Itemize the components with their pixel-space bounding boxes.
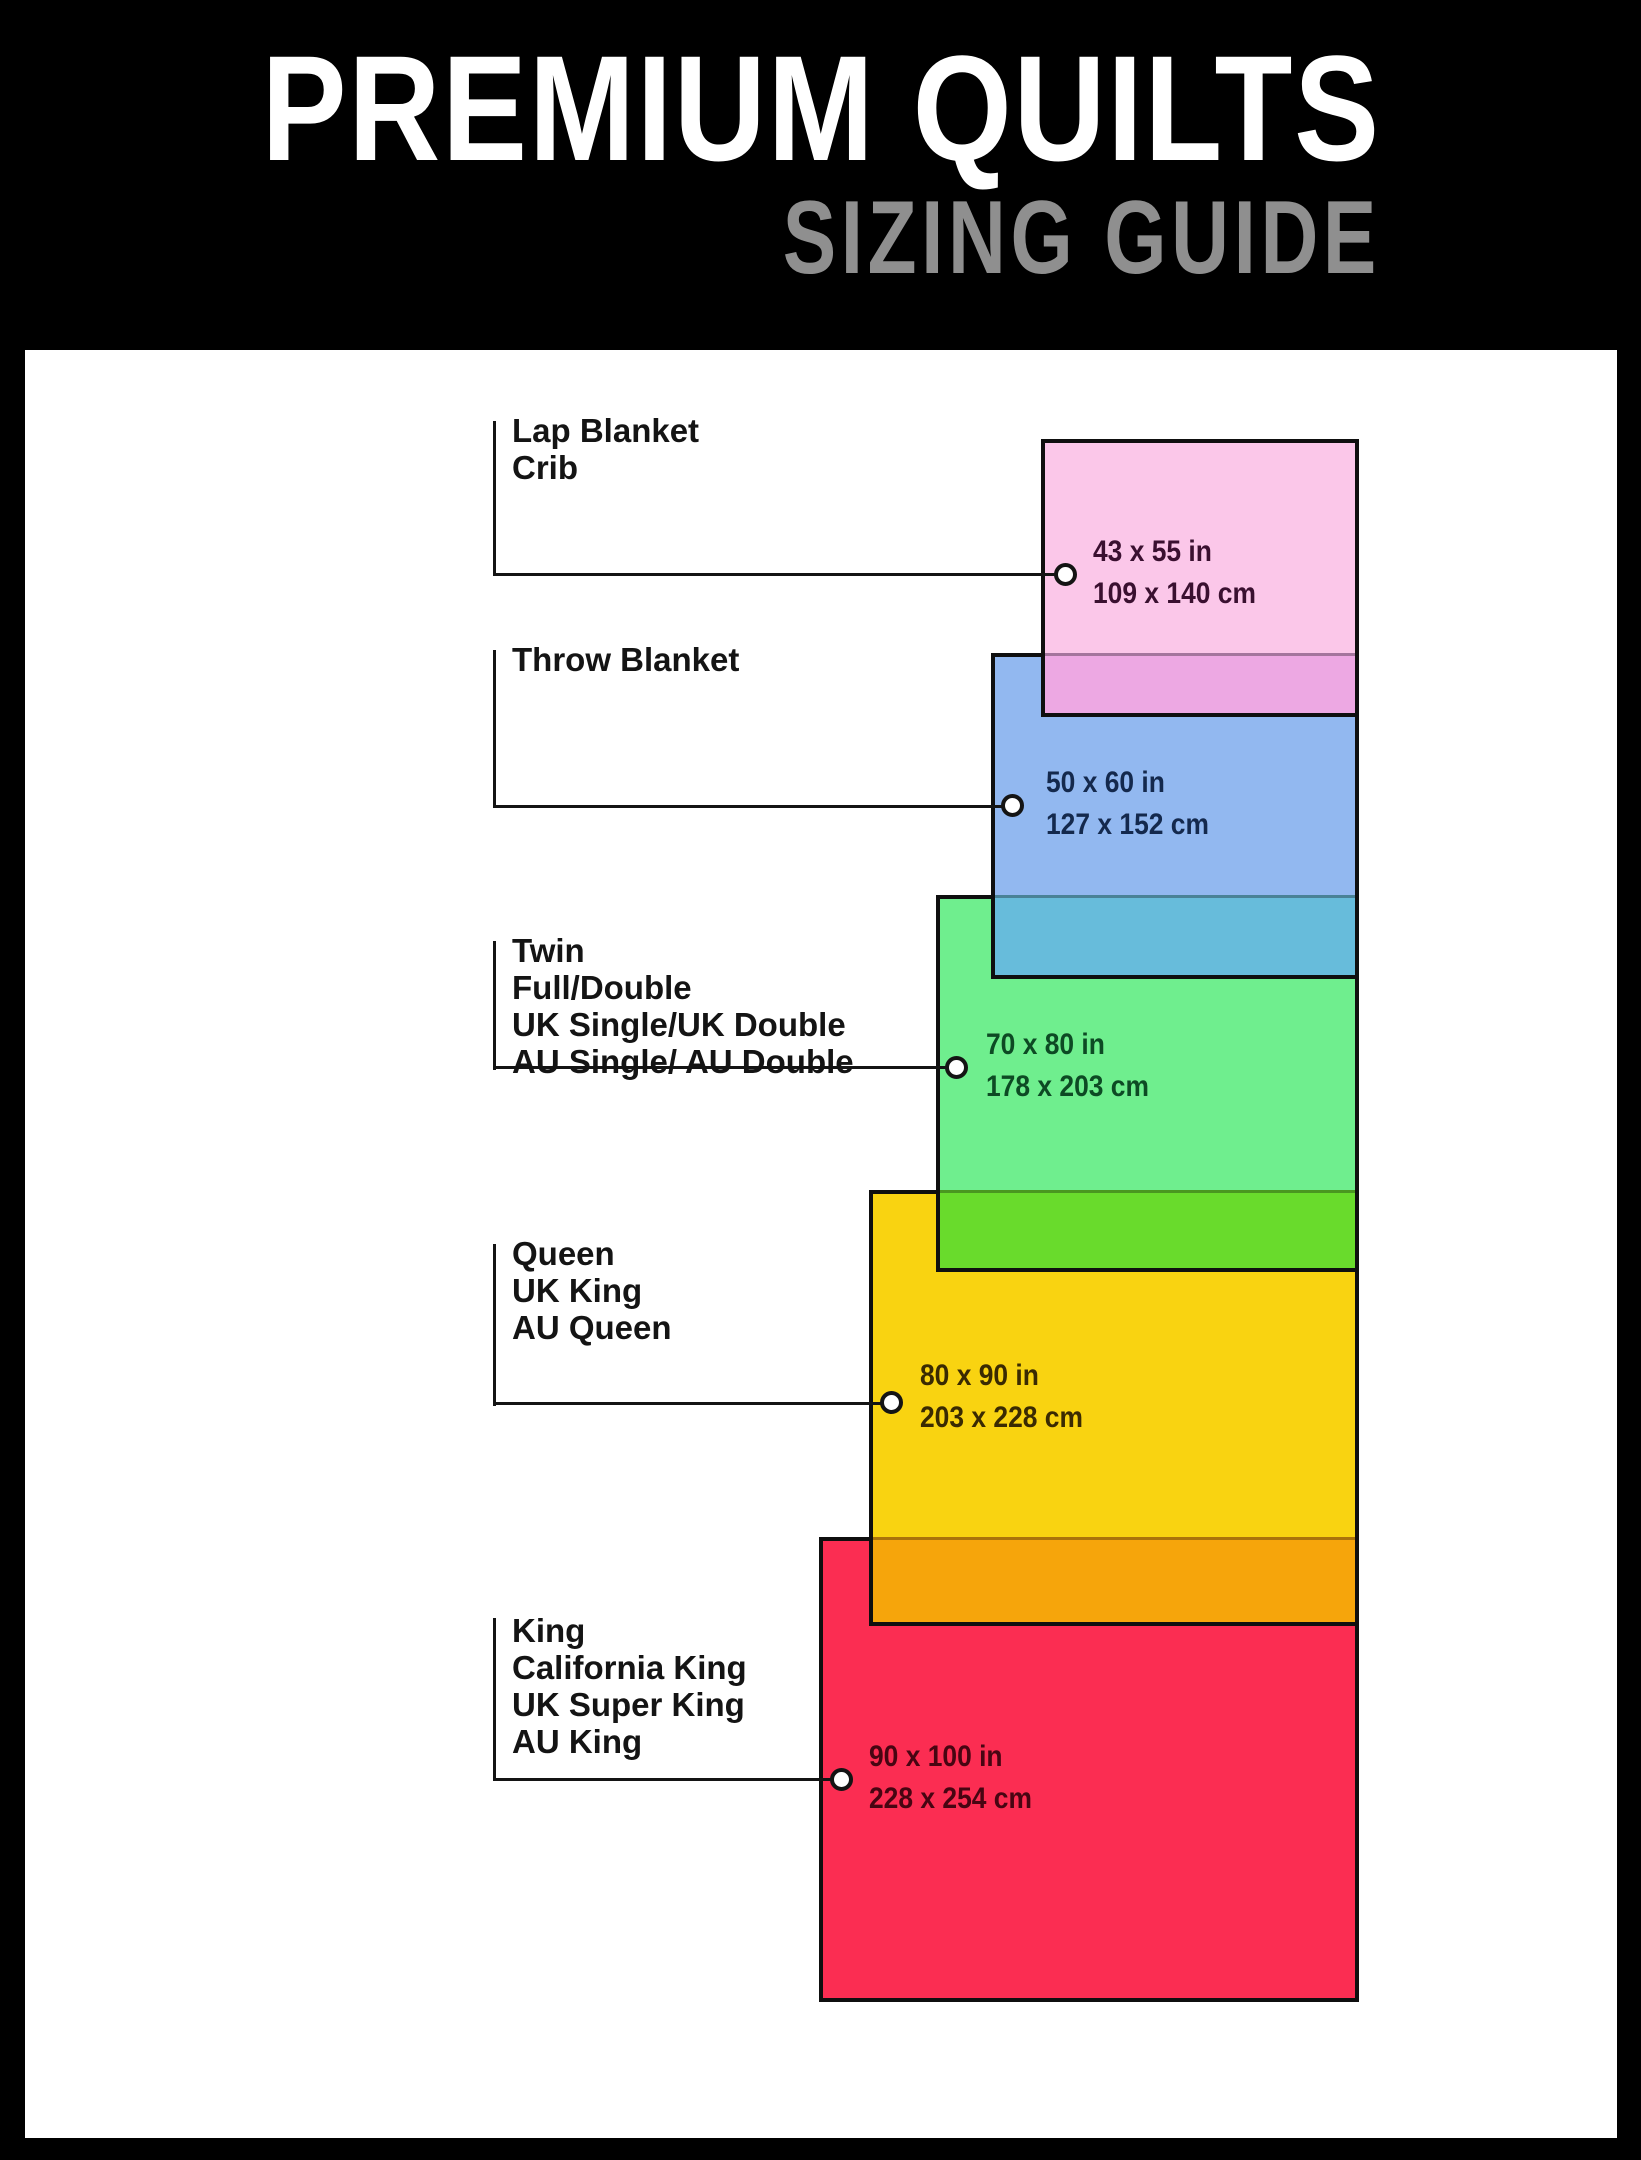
category-label: Lap Blanket Crib xyxy=(512,412,699,486)
dimension-label: 80 x 90 in 203 x 228 cm xyxy=(920,1355,1083,1439)
leader-marker xyxy=(945,1056,968,1079)
overlap-band xyxy=(995,895,1355,975)
category-label: Queen UK King AU Queen xyxy=(512,1235,672,1346)
sizing-guide-infographic: PREMIUM QUILTS SIZING GUIDE Lap Blanket … xyxy=(0,0,1641,2160)
dimension-cm: 178 x 203 cm xyxy=(986,1066,1149,1108)
leader-line xyxy=(493,1402,885,1405)
page-title: PREMIUM QUILTS xyxy=(262,33,1381,183)
leader-line xyxy=(493,573,1059,576)
dimension-cm: 127 x 152 cm xyxy=(1046,804,1209,846)
leader-marker xyxy=(880,1391,903,1414)
overlap-band xyxy=(1045,653,1355,713)
category-label-line: California King xyxy=(512,1649,747,1686)
category-label-line: AU Queen xyxy=(512,1309,672,1346)
category-label-line: Queen xyxy=(512,1235,672,1272)
leader-tick xyxy=(493,1618,496,1781)
dimension-inches: 43 x 55 in xyxy=(1093,531,1256,573)
dimension-cm: 203 x 228 cm xyxy=(920,1397,1083,1439)
category-label-line: Full/Double xyxy=(512,969,854,1006)
dimension-inches: 70 x 80 in xyxy=(986,1024,1149,1066)
category-label-line: UK King xyxy=(512,1272,672,1309)
dimension-cm: 109 x 140 cm xyxy=(1093,573,1256,615)
dimension-inches: 80 x 90 in xyxy=(920,1355,1083,1397)
dimension-label: 43 x 55 in 109 x 140 cm xyxy=(1093,531,1256,615)
leader-tick xyxy=(493,650,496,808)
category-label-line: UK Super King xyxy=(512,1686,747,1723)
page-subtitle: SIZING GUIDE xyxy=(783,186,1381,290)
leader-marker xyxy=(830,1768,853,1791)
dimension-cm: 228 x 254 cm xyxy=(869,1778,1032,1820)
category-label: Throw Blanket xyxy=(512,641,739,678)
category-label-line: King xyxy=(512,1612,747,1649)
leader-marker xyxy=(1054,563,1077,586)
dimension-inches: 90 x 100 in xyxy=(869,1736,1032,1778)
category-label-line: Lap Blanket xyxy=(512,412,699,449)
dimension-label: 50 x 60 in 127 x 152 cm xyxy=(1046,762,1209,846)
quilt-rect-lap-blanket-crib: 43 x 55 in 109 x 140 cm xyxy=(1041,439,1359,717)
category-label-line: Twin xyxy=(512,932,854,969)
category-label-line: Throw Blanket xyxy=(512,641,739,678)
category-label: King California King UK Super King AU Ki… xyxy=(512,1612,747,1760)
dimension-label: 90 x 100 in 228 x 254 cm xyxy=(869,1736,1032,1820)
leader-tick xyxy=(493,421,496,576)
dimension-inches: 50 x 60 in xyxy=(1046,762,1209,804)
dimension-label: 70 x 80 in 178 x 203 cm xyxy=(986,1024,1149,1108)
leader-line xyxy=(493,805,1006,808)
category-label-line: Crib xyxy=(512,449,699,486)
category-label: Twin Full/Double UK Single/UK Double AU … xyxy=(512,932,854,1080)
leader-tick xyxy=(493,941,496,1070)
overlap-band xyxy=(873,1537,1355,1622)
category-label-line: UK Single/UK Double xyxy=(512,1006,854,1043)
category-label-line: AU King xyxy=(512,1723,747,1760)
leader-tick xyxy=(493,1244,496,1406)
leader-marker xyxy=(1001,794,1024,817)
leader-line xyxy=(493,1778,835,1781)
overlap-band xyxy=(940,1190,1355,1268)
category-label-line: AU Single/ AU Double xyxy=(512,1043,854,1080)
leader-line xyxy=(493,1066,950,1069)
